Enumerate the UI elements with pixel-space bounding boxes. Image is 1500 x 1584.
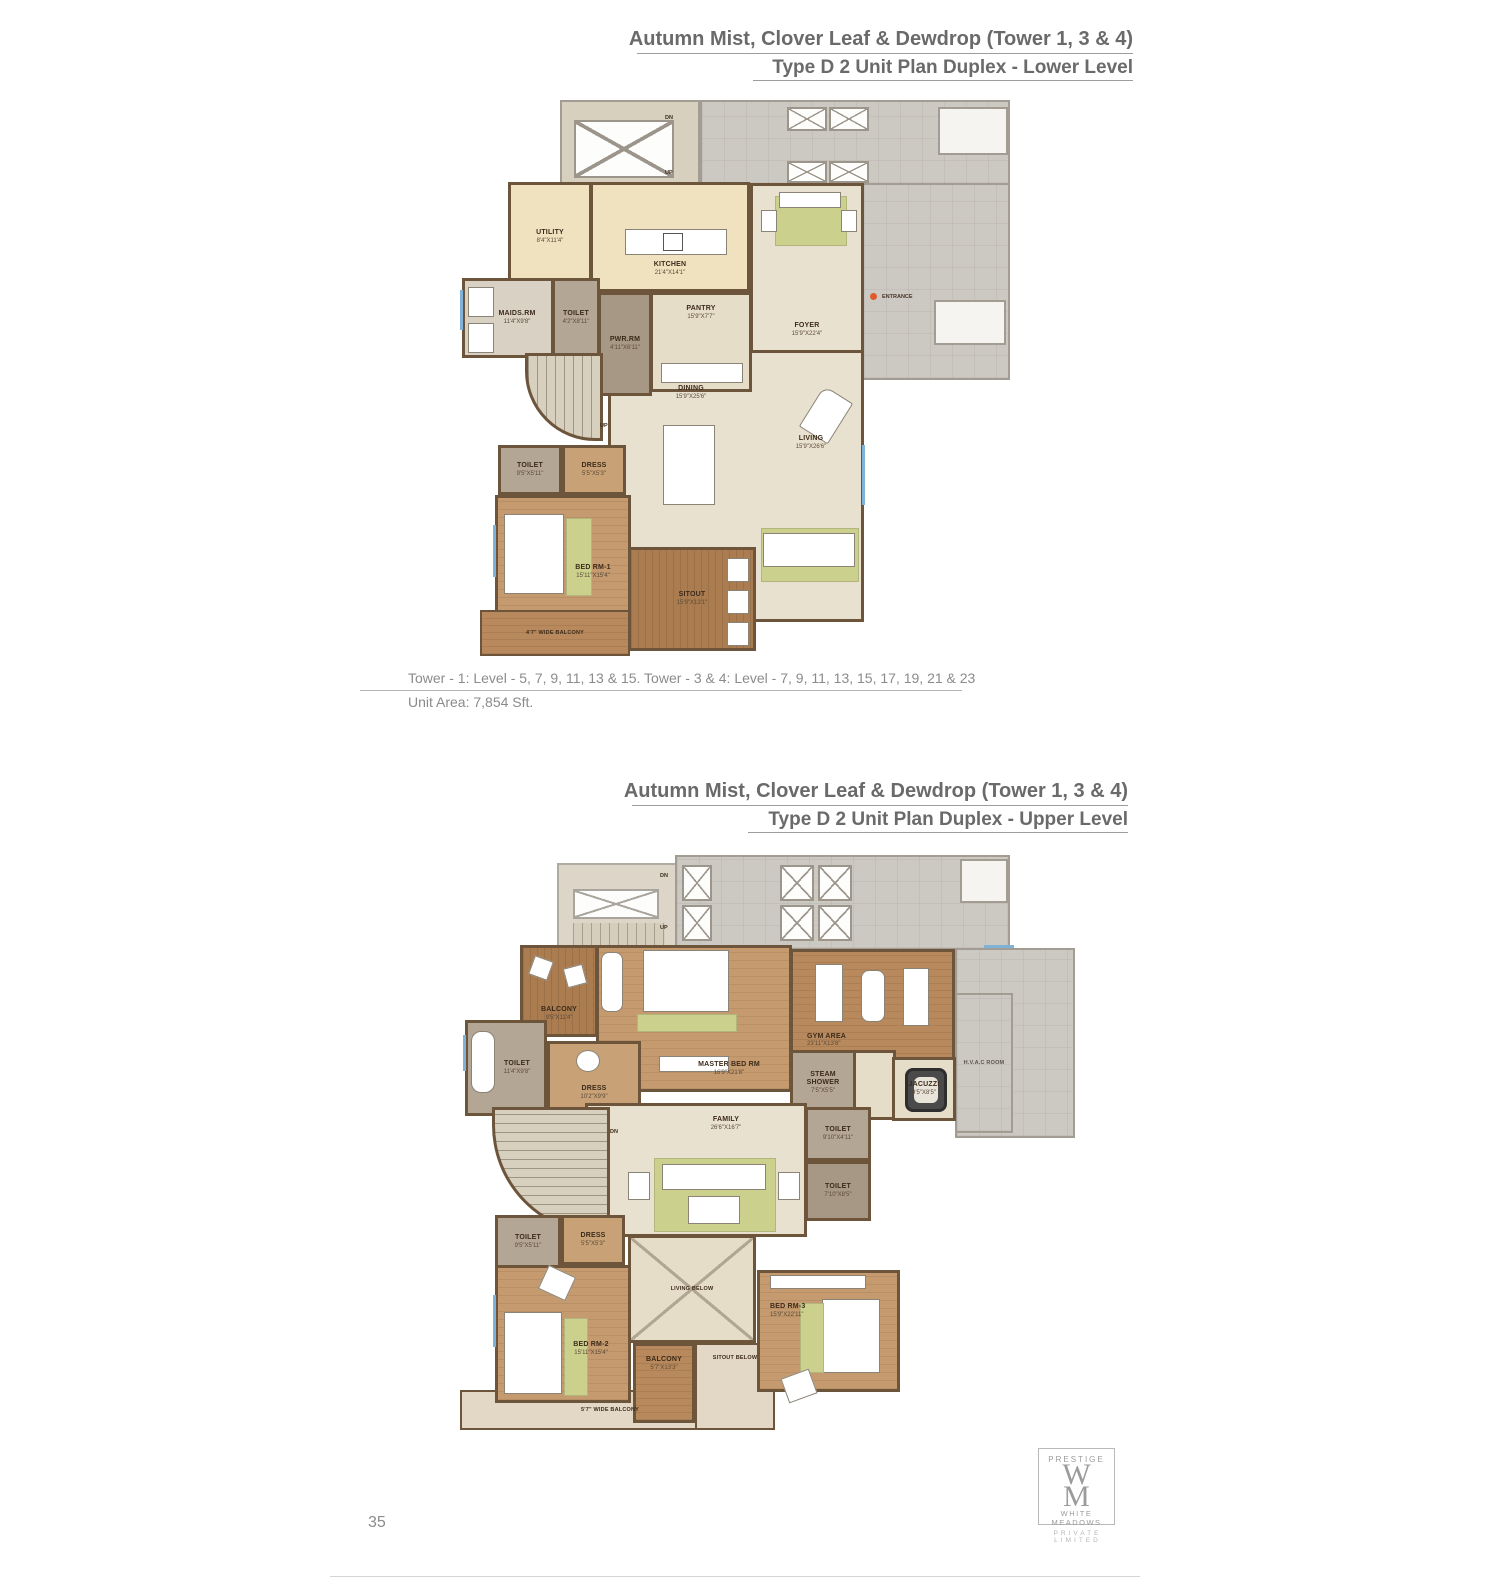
elevator-shaft [818, 905, 852, 941]
room-foyer: FOYER15'9"X22'4" [750, 183, 864, 353]
dining-table [663, 425, 715, 505]
room-powder: PWR.RM4'11"X6'11" [598, 292, 652, 396]
elevator-shaft [682, 865, 712, 901]
bed [468, 287, 494, 317]
elevator-shaft [829, 161, 869, 183]
elevator-shaft [780, 865, 814, 901]
room-maids: MAIDS.RM11'4"X9'8" [462, 278, 554, 358]
upper-plan-subtitle: Type D 2 Unit Plan Duplex - Upper Level [768, 809, 1128, 831]
service-room [938, 107, 1008, 155]
footer-rule [330, 1576, 1140, 1577]
elevator-shaft [787, 107, 827, 131]
stair-treads [573, 923, 665, 945]
gym-equipment [861, 970, 885, 1022]
room-utility: UTILITY8'4"X11'4" [508, 182, 592, 292]
bed [504, 514, 564, 594]
unit-area-caption: Unit Area: 7,854 Sft. [408, 694, 533, 710]
internal-stair [525, 353, 603, 441]
stair-dn-label: DN [665, 115, 673, 121]
room-toilet-bed1: TOILET9'5"X5'11" [498, 445, 562, 495]
lower-plan-title: Autumn Mist, Clover Leaf & Dewdrop (Towe… [629, 28, 1133, 51]
bed [504, 1312, 562, 1394]
room-toilet-master: TOILET11'4"X9'8" [465, 1020, 547, 1116]
lower-plan-subtitle: Type D 2 Unit Plan Duplex - Lower Level [772, 57, 1133, 79]
armchair [841, 210, 857, 232]
room-toilet-bed2: TOILET9'5"X5'11" [495, 1215, 561, 1269]
piano [799, 386, 853, 445]
stair-landing [574, 120, 674, 178]
jacuzzi-tub [905, 1068, 947, 1112]
window [862, 445, 865, 505]
logo-subname-text: PRIVATE LIMITED [1030, 1530, 1125, 1544]
chair [727, 558, 749, 582]
internal-stair-up-label: UP [600, 423, 608, 429]
elevator-shaft [780, 905, 814, 941]
title-rule [637, 53, 1133, 54]
sofa [779, 192, 841, 208]
stair-landing [573, 889, 659, 919]
stair-up-label: UP [665, 170, 673, 176]
stair-up-label: UP [660, 925, 668, 931]
chair [727, 622, 749, 646]
prestige-white-meadows-logo: PRESTIGE W M WHITE MEADOWS [1038, 1448, 1115, 1525]
bed [822, 1299, 880, 1373]
room-balcony-bed2: BALCONY5'7"X13'3" [633, 1343, 695, 1423]
chair [528, 955, 554, 981]
entrance-label: ENTRANCE [882, 294, 913, 300]
coffee-table [688, 1196, 740, 1224]
lobby-corridor [862, 183, 1010, 380]
armchair [761, 210, 777, 232]
living-below-void: LIVING BELOW [628, 1235, 756, 1343]
elevator-shaft [829, 107, 869, 131]
bed [643, 950, 729, 1012]
counter [661, 363, 743, 383]
elevator-shaft [818, 865, 852, 901]
ottoman [576, 1050, 600, 1072]
room-toilet-upper-1: TOILET9'10"X4'11" [805, 1107, 871, 1161]
gym-equipment [903, 968, 929, 1026]
window [460, 290, 463, 330]
chair [563, 964, 587, 988]
logo-monogram-m: M [1039, 1486, 1114, 1508]
armchair [778, 1172, 800, 1200]
window [493, 1295, 496, 1347]
room-bed2: BED RM-215'11"X15'4" [495, 1265, 631, 1403]
chair [727, 590, 749, 614]
chair [538, 1265, 576, 1301]
room-sitout: SITOUT15'9"X13'1" [628, 547, 756, 651]
logo-name-text: WHITE MEADOWS [1039, 1509, 1114, 1527]
elevator-shaft [682, 905, 712, 941]
stair-dn-inner-label: DN [610, 1129, 618, 1135]
service-room [960, 859, 1008, 903]
stair-dn-label: DN [660, 873, 668, 879]
room-pantry: PANTRY15'9"X7'7" [650, 292, 752, 392]
gym-equipment [815, 964, 843, 1022]
room-hvac: H.V.A.C ROOM [955, 993, 1013, 1133]
sofa [601, 952, 623, 1012]
bathtub [471, 1031, 495, 1093]
bed-rug [800, 1303, 824, 1373]
room-jacuzzi: JACUZZI9'5"X8'5" [892, 1057, 956, 1121]
service-room [934, 300, 1006, 345]
page-number: 35 [368, 1514, 386, 1532]
bed-rug [637, 1014, 737, 1032]
dresser [659, 1056, 729, 1072]
sofa [662, 1164, 766, 1190]
hob [663, 233, 683, 251]
window [984, 945, 1014, 948]
elevator-shaft [787, 161, 827, 183]
stairwell [557, 863, 677, 947]
window [463, 1035, 466, 1071]
room-toilet-upper-2: TOILET7'10"X8'5" [805, 1161, 871, 1221]
tower-levels-caption: Tower - 1: Level - 5, 7, 9, 11, 13 & 15.… [408, 670, 975, 686]
upper-plan-title: Autumn Mist, Clover Leaf & Dewdrop (Towe… [624, 780, 1128, 803]
dresser [770, 1275, 866, 1289]
room-bed3: BED RM-315'9"X22'11" [757, 1270, 900, 1392]
chair [780, 1369, 817, 1404]
room-dress-bed1: DRESS5'5"X5'3" [562, 445, 626, 495]
floor-plan-upper-level: DN UP H.V.A.C ROOM 5'7" WIDE BALCONY SIT… [460, 845, 1075, 1430]
balcony-strip: 4'7" WIDE BALCONY [480, 610, 630, 656]
sofa [763, 533, 855, 567]
bed [468, 323, 494, 353]
title-rule-upper [632, 805, 1128, 806]
entrance-dot [870, 293, 877, 300]
window [493, 525, 496, 577]
armchair [628, 1172, 650, 1200]
room-toilet-maids: TOILET4'2"X8'11" [552, 278, 600, 358]
room-bed1: BED RM-115'11"X15'4" [495, 495, 631, 625]
room-dress-bed2: DRESS5'5"X5'3" [561, 1215, 625, 1265]
bed-rug [566, 518, 592, 596]
floor-plan-lower-level: DN UP DINING15'9"X25'6" LIVING15'9"X26'6… [460, 95, 1020, 670]
bed-rug [564, 1318, 588, 1396]
subtitle-rule [753, 80, 1133, 81]
room-kitchen: KITCHEN21'4"X14'1" [590, 182, 750, 292]
caption-rule [360, 690, 962, 691]
subtitle-rule-upper [748, 832, 1128, 833]
